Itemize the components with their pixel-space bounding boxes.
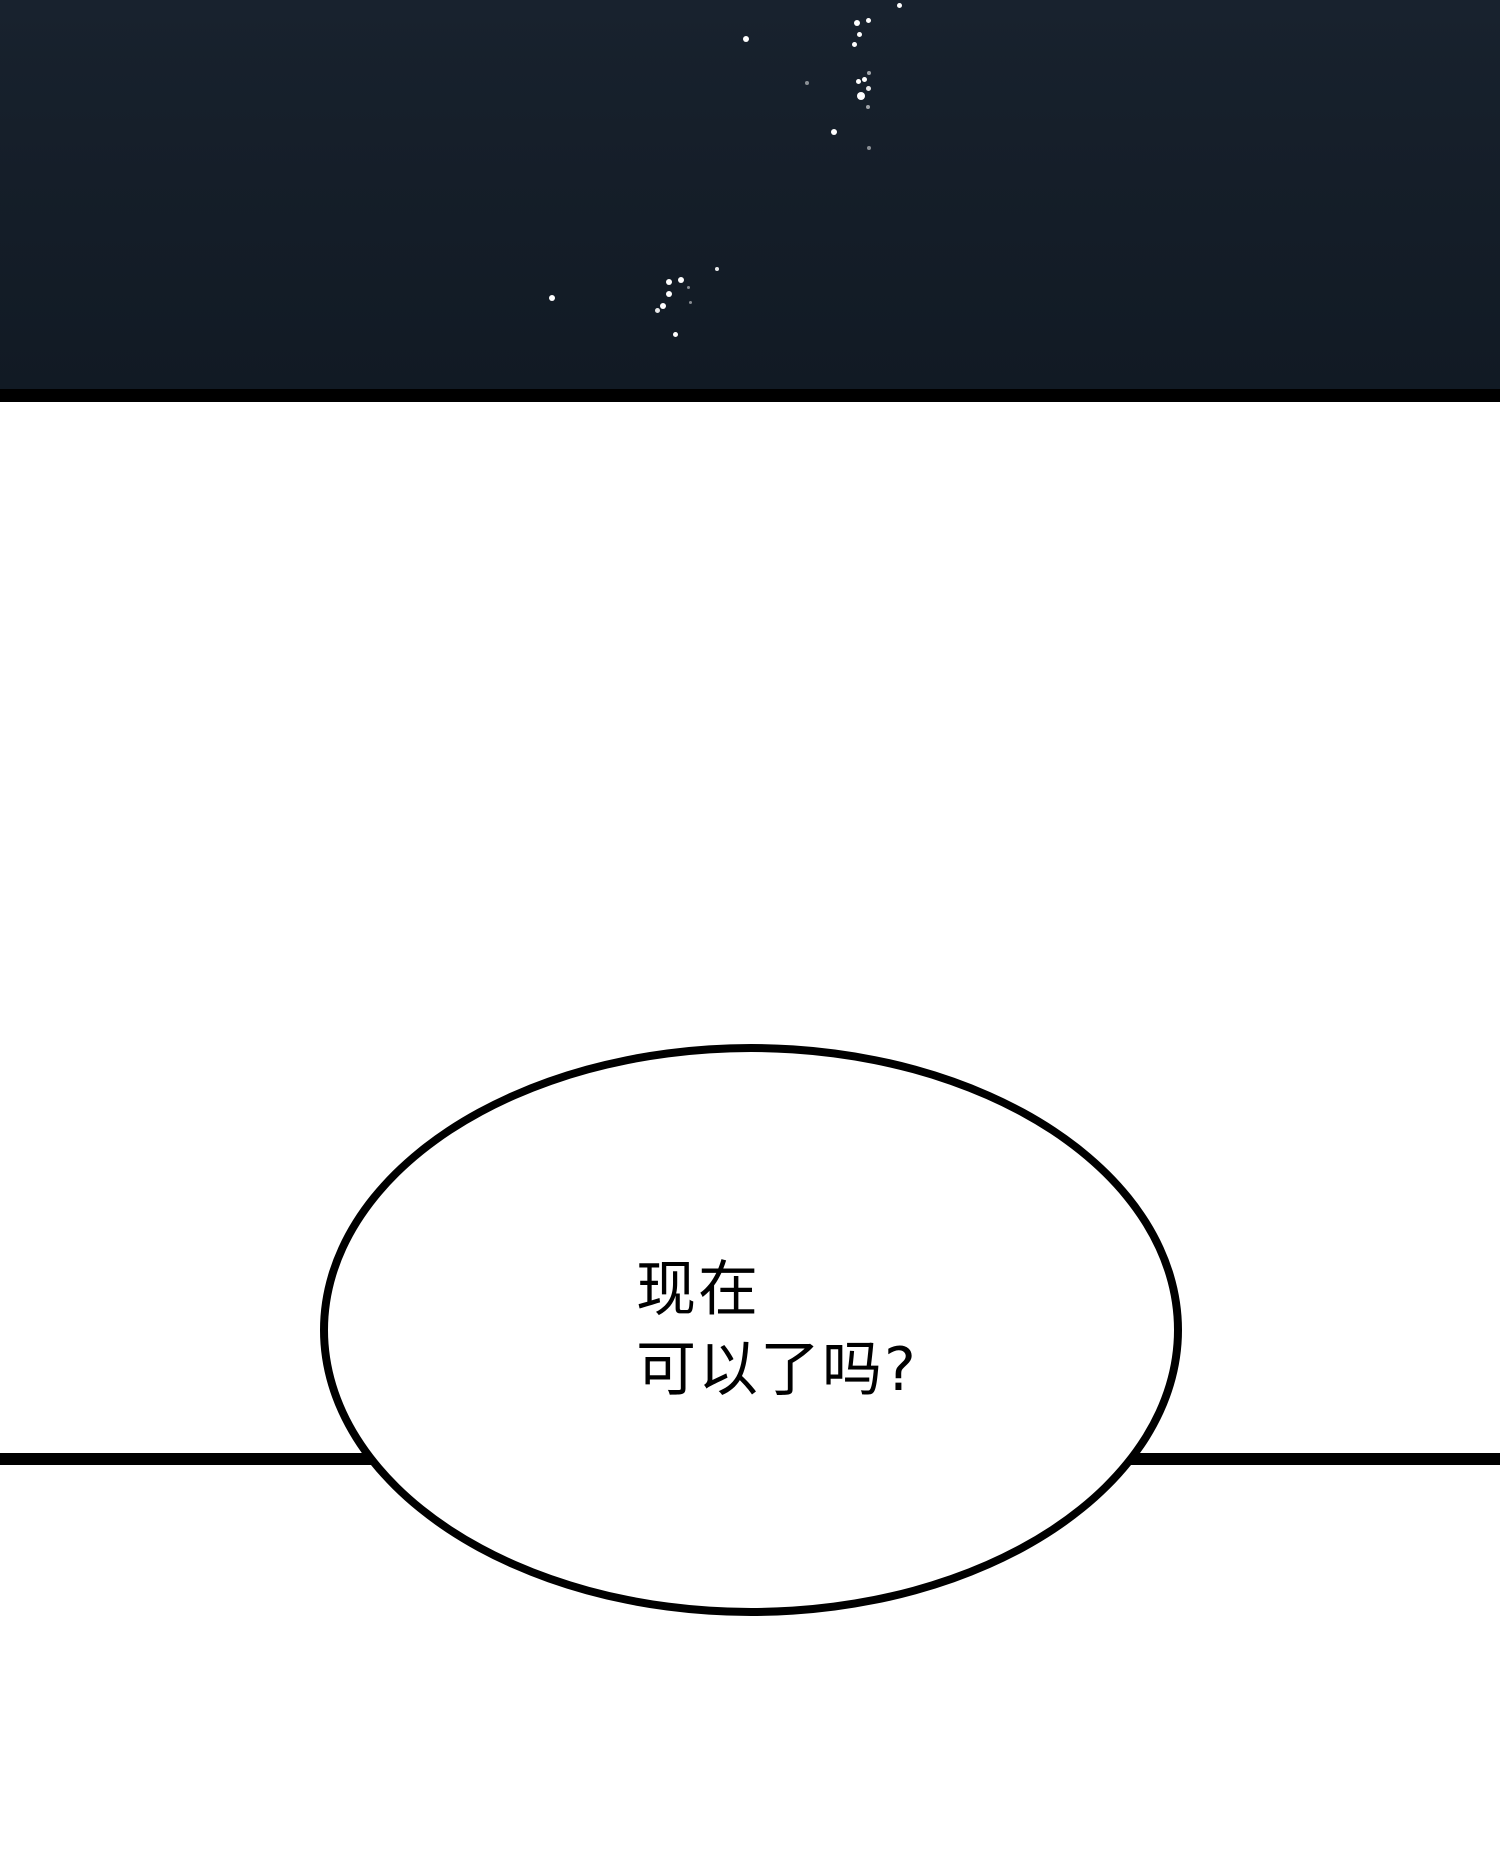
star-speckle [678, 277, 684, 283]
star-speckle [660, 303, 666, 309]
star-speckle [897, 3, 902, 8]
star-speckle [743, 36, 749, 42]
star-speckle [673, 332, 678, 337]
comic-panel: 现在 可以了吗? [0, 0, 1500, 1855]
speech-line-1: 现在 [636, 1250, 918, 1330]
speech-bubble-text: 现在 可以了吗? [636, 1250, 918, 1410]
panel-edge-strip [0, 389, 1500, 402]
star-speckle [866, 86, 871, 91]
star-speckle [852, 42, 857, 47]
star-speckle [862, 77, 867, 82]
star-speckle [666, 279, 672, 285]
star-speckle [831, 129, 837, 135]
star-speckle [867, 146, 871, 150]
star-speckle [867, 71, 871, 75]
star-speckle [866, 105, 870, 109]
star-speckle [857, 32, 862, 37]
star-speckle [687, 286, 690, 289]
star-speckle [655, 308, 660, 313]
speech-bubble: 现在 可以了吗? [320, 1044, 1182, 1616]
star-speckle [866, 18, 871, 23]
star-speckle [856, 79, 861, 84]
star-speckle [689, 301, 692, 304]
star-speckle [549, 295, 555, 301]
star-speckle [854, 20, 860, 26]
star-speckle [857, 92, 865, 100]
night-sky-panel [0, 0, 1500, 389]
speech-line-2: 可以了吗? [636, 1330, 918, 1410]
star-speckle [715, 267, 719, 271]
star-speckle [805, 81, 809, 85]
star-speckle [666, 291, 672, 297]
